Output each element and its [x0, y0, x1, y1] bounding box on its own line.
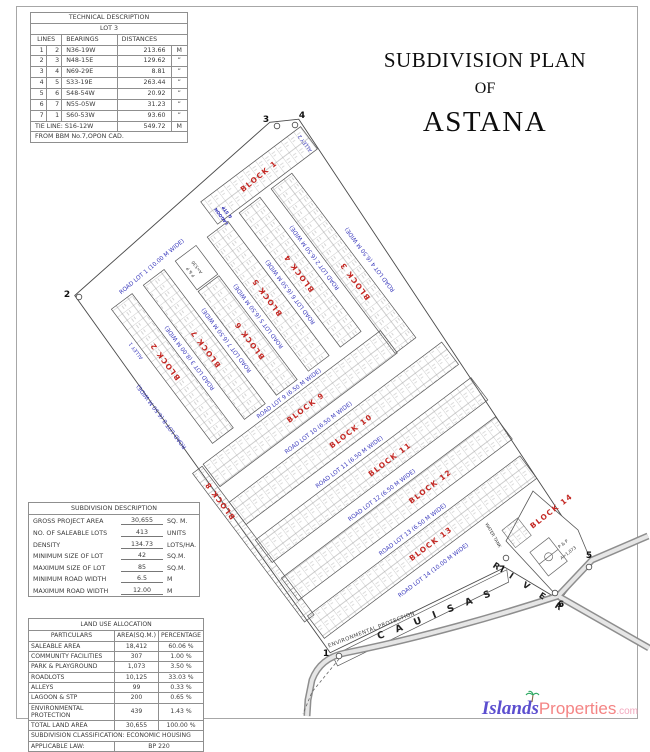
- subdivision-description-title: SUBDIVISION DESCRIPTION: [29, 503, 199, 515]
- islands-properties-logo[interactable]: IslandsProperties.com: [482, 698, 638, 720]
- corner-point-4: 4: [299, 111, 305, 121]
- land-use-label: LAGOON & STP: [29, 693, 115, 703]
- corner-point-7: 7: [499, 565, 505, 575]
- land-use-label: ALLEYS: [29, 682, 115, 692]
- description-row: MAXIMUM ROAD WIDTH 12.00 M: [29, 584, 199, 596]
- applicable-law-label: APPLICABLE LAW:: [29, 741, 115, 751]
- description-label: MAXIMUM ROAD WIDTH: [33, 588, 121, 595]
- subdivision-description-rows: GROSS PROJECT AREA 30,655 SQ. M. NO. OF …: [29, 515, 199, 596]
- corner-marker: [76, 294, 82, 300]
- description-row: NO. OF SALEABLE LOTS 413 UNITS: [29, 527, 199, 539]
- description-unit: UNITS: [167, 530, 195, 537]
- description-label: GROSS PROJECT AREA: [33, 518, 121, 525]
- classification-cell: SUBDIVISION CLASSIFICATION: ECONOMIC HOU…: [29, 731, 204, 741]
- land-use-area: 30,655: [115, 721, 159, 731]
- classification-label: SUBDIVISION CLASSIFICATION:: [31, 732, 125, 739]
- land-use-row: SALEABLE AREA 18,412 60.06 %: [29, 641, 204, 651]
- description-row: MINIMUM ROAD WIDTH 6.5 M: [29, 573, 199, 585]
- description-unit: M: [167, 588, 195, 595]
- description-value: 413: [121, 529, 163, 537]
- classification-value: ECONOMIC HOUSING: [127, 732, 191, 739]
- land-use-row: COMMUNITY FACILITIES 307 1.00 %: [29, 651, 204, 661]
- description-row: DENSITY 134.73 LOTS/HA.: [29, 538, 199, 550]
- land-use-label: PARK & PLAYGROUND: [29, 662, 115, 672]
- description-value: 6.5: [121, 575, 163, 583]
- land-use-label: SALEABLE AREA: [29, 641, 115, 651]
- land-use-row: ALLEYS 99 0.33 %: [29, 682, 204, 692]
- description-unit: SQ.M.: [167, 565, 195, 572]
- land-use-area: 307: [115, 651, 159, 661]
- col-particulars: PARTICULARS: [29, 631, 115, 641]
- description-value: 134.73: [121, 541, 163, 549]
- description-value: 85: [121, 564, 163, 572]
- description-value: 42: [121, 552, 163, 560]
- corner-point-3: 3: [263, 115, 269, 125]
- description-row: MINIMUM SIZE OF LOT 42 SQ.M.: [29, 550, 199, 562]
- applicable-law-row: APPLICABLE LAW: BP 220: [29, 741, 204, 751]
- description-value: 12.00: [121, 587, 163, 595]
- land-use-label: COMMUNITY FACILITIES: [29, 651, 115, 661]
- corner-point-6: 6: [558, 600, 564, 610]
- land-use-percentage: 0.65 %: [158, 693, 203, 703]
- land-use-label: TOTAL LAND AREA: [29, 721, 115, 731]
- description-label: NO. OF SALEABLE LOTS: [33, 530, 121, 537]
- description-unit: SQ.M.: [167, 553, 195, 560]
- corner-point-5: 5: [586, 551, 592, 561]
- land-use-row: TOTAL LAND AREA 30,655 100.00 %: [29, 721, 204, 731]
- description-label: DENSITY: [33, 542, 121, 549]
- corner-marker: [586, 564, 592, 570]
- applicable-law-value: BP 220: [115, 741, 204, 751]
- land-use-area: 439: [115, 703, 159, 721]
- land-use-label: ROADLOTS: [29, 672, 115, 682]
- corner-marker: [552, 590, 558, 596]
- subdivision-plat-map: ROAD LOT 1 (10.00 M WIDE) ROAD LOT 2 (6.…: [0, 0, 650, 723]
- land-use-row: LAGOON & STP 200 0.65 %: [29, 693, 204, 703]
- land-use-percentage: 1.00 %: [158, 651, 203, 661]
- corner-marker: [336, 653, 342, 659]
- land-use-area: 99: [115, 682, 159, 692]
- land-use-row: PARK & PLAYGROUND 1,073 3.50 %: [29, 662, 204, 672]
- land-use-percentage: 3.50 %: [158, 662, 203, 672]
- corner-point-1: 1: [323, 649, 329, 659]
- description-label: MINIMUM ROAD WIDTH: [33, 576, 121, 583]
- corner-marker: [503, 555, 509, 561]
- corner-point-2: 2: [64, 290, 70, 300]
- land-use-percentage: 33.03 %: [158, 672, 203, 682]
- description-label: MAXIMUM SIZE OF LOT: [33, 565, 121, 572]
- description-row: MAXIMUM SIZE OF LOT 85 SQ.M.: [29, 561, 199, 573]
- description-unit: M: [167, 576, 195, 583]
- land-use-percentage: 0.33 %: [158, 682, 203, 692]
- land-use-area: 10,125: [115, 672, 159, 682]
- palm-tree-icon: [524, 690, 540, 703]
- land-use-row: ENVIRONMENTAL PROTECTION 439 1.43 %: [29, 703, 204, 721]
- logo-text-tld: .com: [616, 706, 638, 717]
- description-unit: SQ. M.: [167, 518, 195, 525]
- col-percentage: PERCENTAGE: [158, 631, 203, 641]
- col-area: AREA(SQ.M.): [115, 631, 159, 641]
- corner-marker: [274, 123, 280, 129]
- land-use-percentage: 60.06 %: [158, 641, 203, 651]
- description-value: 30,655: [121, 517, 163, 525]
- land-use-row: ROADLOTS 10,125 33.03 %: [29, 672, 204, 682]
- land-use-allocation-table: LAND USE ALLOCATION PARTICULARS AREA(SQ.…: [28, 618, 204, 752]
- land-use-percentage: 100.00 %: [158, 721, 203, 731]
- land-use-area: 18,412: [115, 641, 159, 651]
- description-unit: LOTS/HA.: [167, 542, 195, 549]
- description-label: MINIMUM SIZE OF LOT: [33, 553, 121, 560]
- logo-text-properties: Properties: [539, 699, 616, 718]
- land-use-label: ENVIRONMENTAL PROTECTION: [29, 703, 115, 721]
- land-use-area: 1,073: [115, 662, 159, 672]
- subdivision-description-box: SUBDIVISION DESCRIPTION GROSS PROJECT AR…: [28, 502, 200, 597]
- corner-marker: [292, 122, 298, 128]
- description-row: GROSS PROJECT AREA 30,655 SQ. M.: [29, 515, 199, 527]
- land-use-title: LAND USE ALLOCATION: [29, 619, 204, 631]
- land-use-percentage: 1.43 %: [158, 703, 203, 721]
- land-use-area: 200: [115, 693, 159, 703]
- land-use-rows: SALEABLE AREA 18,412 60.06 % COMMUNITY F…: [29, 641, 204, 731]
- classification-row: SUBDIVISION CLASSIFICATION: ECONOMIC HOU…: [29, 731, 204, 741]
